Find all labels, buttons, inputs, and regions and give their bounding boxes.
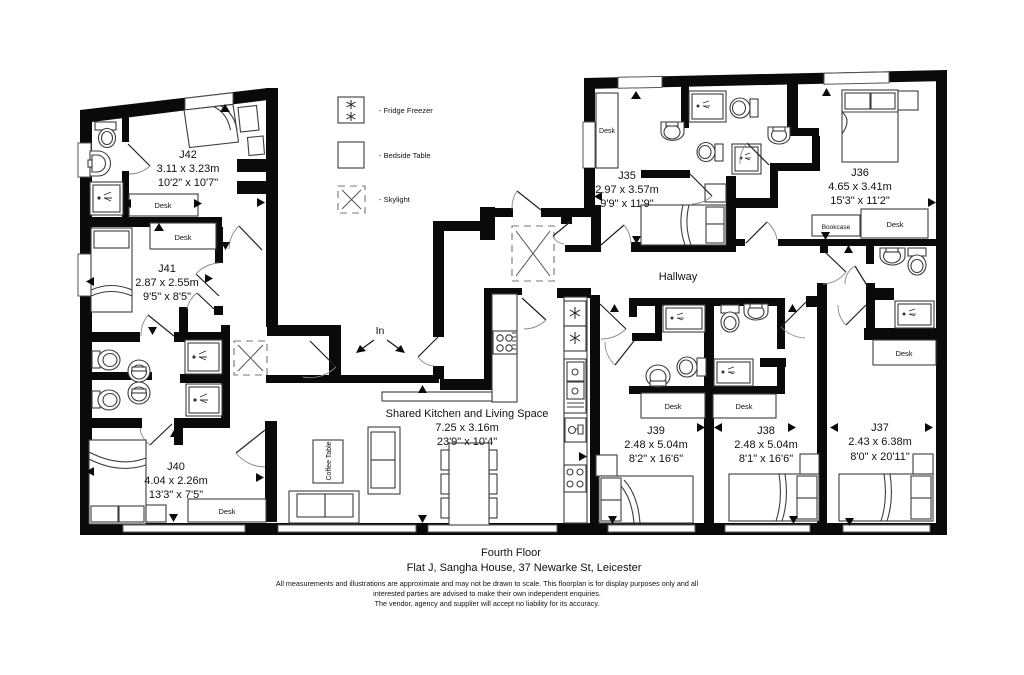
svg-text:8'1" x 16'6": 8'1" x 16'6" xyxy=(739,453,793,465)
svg-text:9'5" x 8'5": 9'5" x 8'5" xyxy=(143,291,191,303)
svg-text:2.43 x 6.38m: 2.43 x 6.38m xyxy=(848,436,912,448)
svg-text:interested parties are advised: interested parties are advised to make t… xyxy=(373,589,601,598)
svg-text:- Bedside Table: - Bedside Table xyxy=(379,151,431,160)
svg-text:2.48 x 5.04m: 2.48 x 5.04m xyxy=(734,439,798,451)
svg-text:2.97 x 3.57m: 2.97 x 3.57m xyxy=(595,184,659,196)
svg-text:2.87 x 2.55m: 2.87 x 2.55m xyxy=(135,277,199,289)
svg-text:J42: J42 xyxy=(179,149,197,161)
svg-text:23'9" x 10'4": 23'9" x 10'4" xyxy=(437,436,497,448)
svg-text:Desk: Desk xyxy=(154,201,171,210)
svg-text:Desk: Desk xyxy=(735,402,752,411)
svg-text:Desk: Desk xyxy=(886,220,903,229)
svg-text:2.48 x 5.04m: 2.48 x 5.04m xyxy=(624,439,688,451)
svg-text:J35: J35 xyxy=(618,170,636,182)
svg-text:10'2" x 10'7": 10'2" x 10'7" xyxy=(158,177,218,189)
svg-text:- Skylight: - Skylight xyxy=(379,195,411,204)
svg-text:Shared Kitchen and Living Spac: Shared Kitchen and Living Space xyxy=(386,408,549,420)
svg-text:4.65 x 3.41m: 4.65 x 3.41m xyxy=(828,181,892,193)
svg-text:8'0" x 20'11": 8'0" x 20'11" xyxy=(850,451,910,463)
svg-text:In: In xyxy=(376,325,385,337)
svg-text:All measurements and illustrat: All measurements and illustrations are a… xyxy=(276,579,699,588)
svg-text:Desk: Desk xyxy=(895,349,912,358)
svg-text:Desk: Desk xyxy=(664,402,681,411)
svg-text:J39: J39 xyxy=(647,425,665,437)
svg-text:Desk: Desk xyxy=(218,507,235,516)
svg-text:Fourth Floor: Fourth Floor xyxy=(481,547,541,559)
svg-text:The vendor, agency and supplie: The vendor, agency and supplier will acc… xyxy=(375,599,600,608)
svg-text:J38: J38 xyxy=(757,425,775,437)
svg-text:J40: J40 xyxy=(167,461,185,473)
svg-text:3.11 x 3.23m: 3.11 x 3.23m xyxy=(157,163,220,175)
svg-text:Desk: Desk xyxy=(599,128,615,135)
svg-text:Desk: Desk xyxy=(174,233,191,242)
svg-text:J41: J41 xyxy=(158,263,176,275)
svg-text:Flat J, Sangha House, 37 Newar: Flat J, Sangha House, 37 Newarke St, Lei… xyxy=(407,562,642,574)
svg-text:Hallway: Hallway xyxy=(659,271,698,283)
svg-text:9'9" x 11'9": 9'9" x 11'9" xyxy=(600,198,653,210)
svg-text:4.04 x 2.26m: 4.04 x 2.26m xyxy=(144,475,208,487)
svg-text:13'3" x 7'5": 13'3" x 7'5" xyxy=(149,489,203,501)
svg-text:J37: J37 xyxy=(871,422,889,434)
svg-text:15'3" x 11'2": 15'3" x 11'2" xyxy=(830,195,890,207)
svg-text:J36: J36 xyxy=(851,167,869,179)
svg-text:Coffee Table: Coffee Table xyxy=(326,441,333,480)
svg-text:7.25 x 3.16m: 7.25 x 3.16m xyxy=(435,422,499,434)
svg-text:8'2" x 16'6": 8'2" x 16'6" xyxy=(629,453,683,465)
svg-text:- Fridge Freezer: - Fridge Freezer xyxy=(379,106,433,115)
svg-text:Bookcase: Bookcase xyxy=(822,224,851,231)
